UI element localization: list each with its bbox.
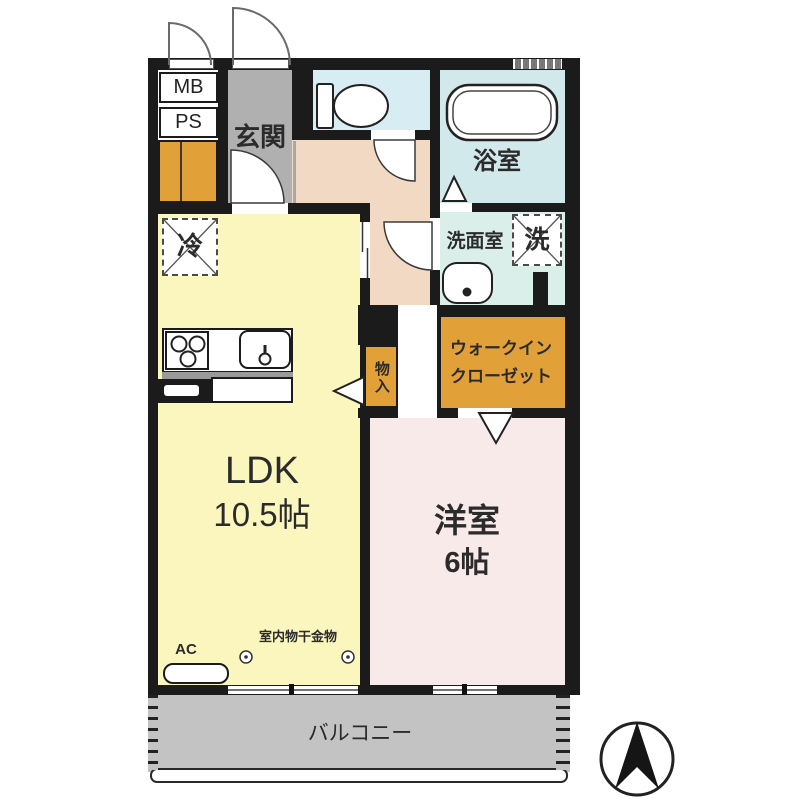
passage-to-western-room bbox=[398, 305, 437, 418]
walk-in-closet-box bbox=[437, 317, 565, 408]
room-bathroom bbox=[440, 70, 565, 203]
meterbox-door-leaf bbox=[169, 59, 214, 69]
ldk-size-label: 10.5帖 bbox=[172, 494, 352, 536]
wall-right bbox=[565, 58, 580, 695]
western-window bbox=[433, 686, 497, 694]
wall-storage-block bbox=[358, 305, 398, 345]
balcony-hatch-right bbox=[556, 695, 570, 770]
room-toilet bbox=[313, 70, 430, 130]
entrance-door-arc bbox=[233, 8, 290, 65]
wic-label-line2: クローゼット bbox=[440, 366, 562, 388]
entrance-door-leaf bbox=[232, 59, 289, 69]
bathroom-door-gap bbox=[440, 203, 472, 212]
room-hall-upper bbox=[292, 140, 430, 203]
balcony-hatch-left bbox=[148, 695, 158, 770]
genkan-door-gap bbox=[232, 203, 288, 214]
ac-label: AC bbox=[166, 640, 206, 660]
entrance-closet bbox=[158, 140, 218, 203]
western-room-label: 洋室 bbox=[377, 500, 557, 542]
room-hall-lower bbox=[370, 203, 430, 305]
kitchen-lower-unit-white bbox=[211, 377, 293, 403]
north-arrow-icon bbox=[615, 722, 659, 789]
toilet-door-gap bbox=[371, 130, 415, 140]
wic-label-line1: ウォークイン bbox=[440, 338, 562, 360]
meter-box-label: MB bbox=[174, 76, 204, 99]
laundry-hardware-label: 室内物干金物 bbox=[228, 628, 368, 646]
washing-machine-label: 洗 bbox=[512, 214, 562, 266]
entrance-closet-divider bbox=[180, 142, 182, 201]
ldk-window bbox=[228, 686, 358, 694]
wic-door-gap bbox=[458, 408, 512, 418]
washroom-label: 洗面室 bbox=[434, 229, 516, 255]
western-room-size-label: 6帖 bbox=[377, 544, 557, 582]
kitchen-lower-unit-slot bbox=[164, 385, 199, 396]
meter-box: MB bbox=[159, 72, 218, 103]
ldk-label: LDK bbox=[172, 450, 352, 494]
floorplan-canvas: MB PS bbox=[0, 0, 800, 800]
wall-washroom-stub bbox=[533, 272, 548, 305]
balcony-rail bbox=[150, 768, 568, 783]
entrance-label: 玄関 bbox=[210, 120, 310, 156]
balcony-label: バルコニー bbox=[270, 720, 450, 748]
kitchen-counter bbox=[162, 328, 293, 373]
compass-circle bbox=[601, 723, 673, 795]
wall-bottom bbox=[148, 685, 580, 695]
bathroom-window bbox=[513, 59, 562, 69]
bathroom-label: 浴室 bbox=[447, 146, 547, 178]
refrigerator-label: 冷 bbox=[162, 218, 218, 276]
ac-unit bbox=[163, 663, 229, 684]
storage-label: 物入 bbox=[366, 350, 396, 405]
pipe-space-label: PS bbox=[175, 111, 202, 134]
wall-left bbox=[148, 58, 158, 695]
ldk-sliding-door bbox=[360, 222, 370, 278]
